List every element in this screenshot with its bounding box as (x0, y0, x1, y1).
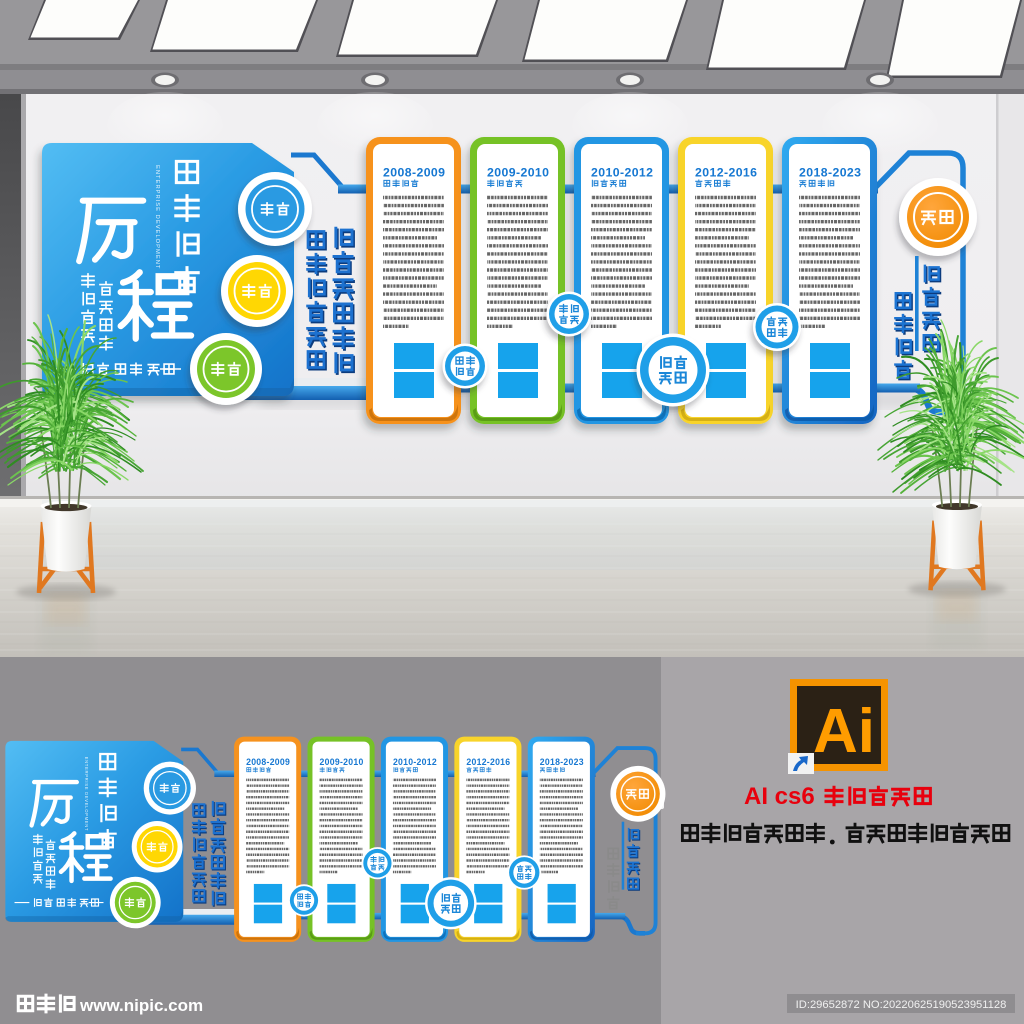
svg-text:2008-2009: 2008-2009 (383, 166, 445, 180)
svg-text:ID:29652872 NO:202206251905239: ID:29652872 NO:20220625190523951128 (796, 999, 1007, 1011)
svg-text:2009-2010: 2009-2010 (487, 166, 549, 180)
svg-text:2012-2016: 2012-2016 (695, 166, 757, 180)
svg-text:AI cs6: AI cs6 (744, 783, 815, 810)
svg-text:Ai: Ai (813, 697, 875, 766)
svg-text:2010-2012: 2010-2012 (591, 166, 653, 180)
svg-text:2018-2023: 2018-2023 (799, 166, 861, 180)
svg-text:www.nipic.com: www.nipic.com (79, 996, 203, 1015)
svg-text:ENTERPRISE DEVELOPMENT: ENTERPRISE DEVELOPMENT (154, 165, 160, 269)
